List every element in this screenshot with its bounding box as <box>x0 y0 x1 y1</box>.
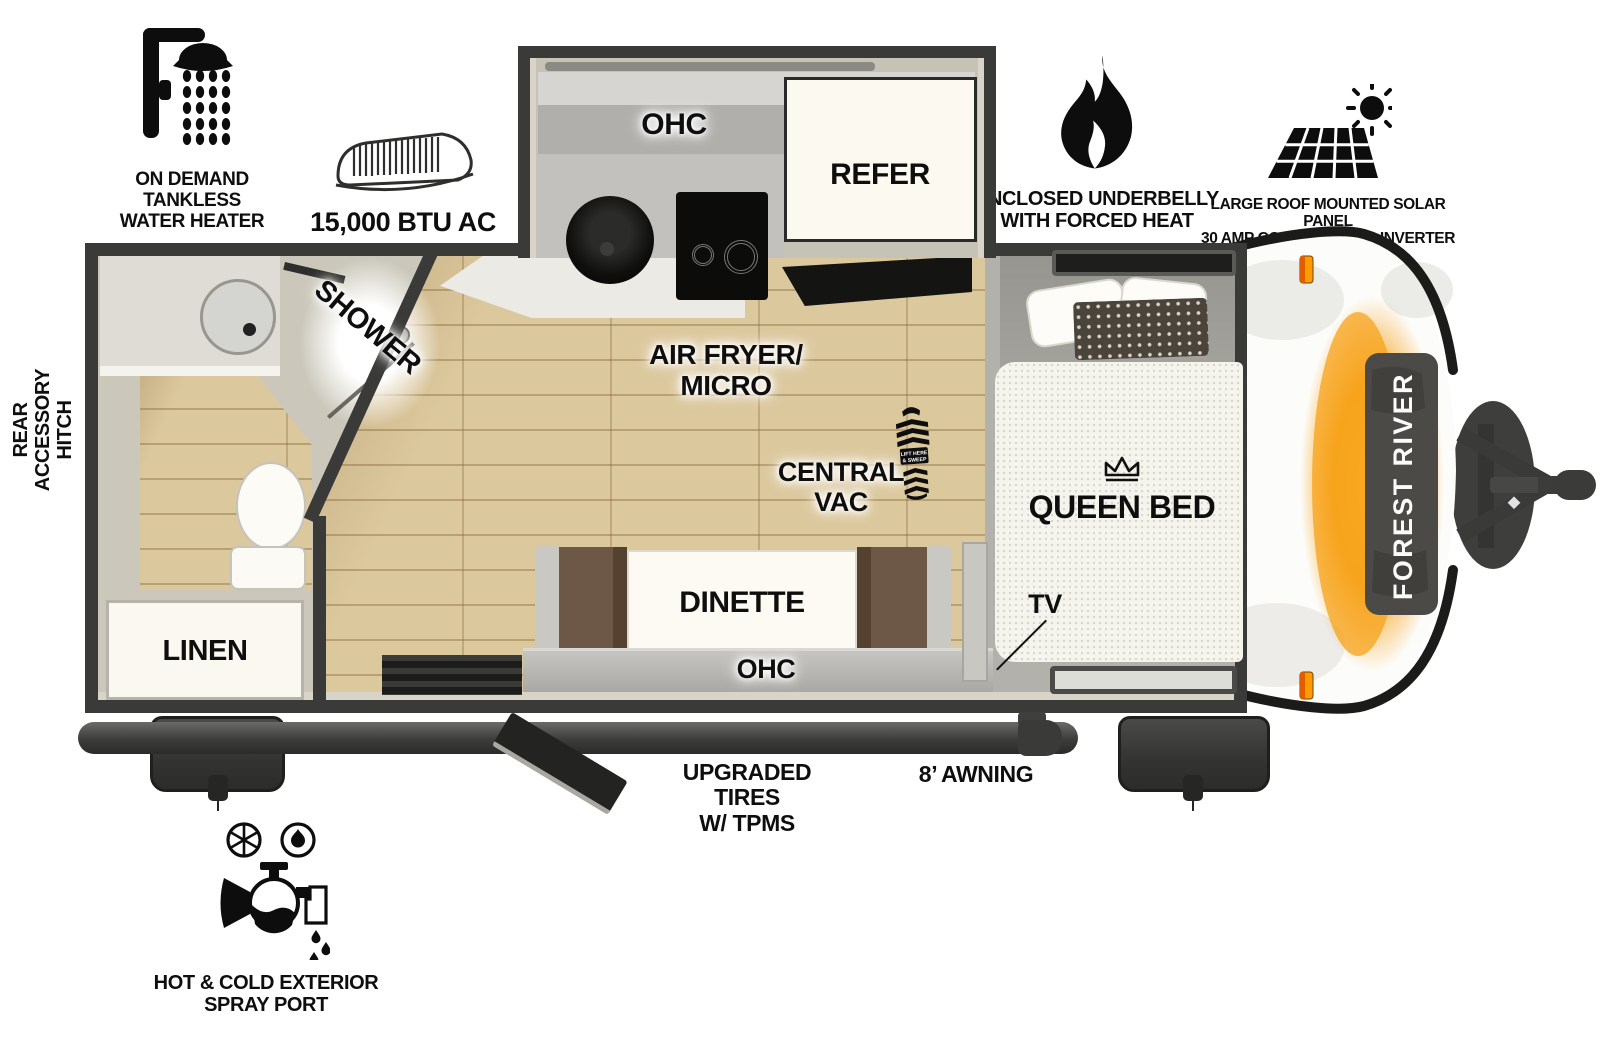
rear-hitch-label: REAR ACCESSORY HITCH <box>10 340 74 520</box>
dinette-label: DINETTE <box>642 586 842 619</box>
snowflake-icon <box>232 826 256 854</box>
boot-print-icon: LIFT HERE & SWEEP <box>888 402 941 505</box>
tpms-stem-right <box>1192 799 1194 811</box>
roof-vent-front <box>1052 250 1236 276</box>
dinette-ohc-label: OHC <box>666 655 866 685</box>
ac-unit-icon <box>330 128 482 198</box>
roof-vent-rear-bed <box>1050 666 1237 694</box>
spray-port-icon <box>210 818 330 960</box>
flame-small-icon <box>291 829 305 848</box>
kitchen-sink-drain <box>600 242 614 256</box>
ac-label: 15,000 BTU AC <box>298 208 508 238</box>
front-cap: FOREST RIVER <box>1222 220 1472 720</box>
tpms-sensor-right <box>1183 775 1203 801</box>
marker-light-bottom <box>1300 672 1313 699</box>
tires-label: UPGRADED TIRES W/ TPMS <box>647 760 847 836</box>
wheel-fender-right <box>1118 716 1270 792</box>
underbelly-label: ENCLOSED UNDERBELLY WITH FORCED HEAT <box>972 188 1222 232</box>
spray-port-label: HOT & COLD EXTERIOR SPRAY PORT <box>146 972 386 1016</box>
tpms-sensor-left <box>208 775 228 801</box>
kitchen-sink <box>566 196 654 284</box>
crown-icon <box>1102 454 1142 484</box>
marker-light-top <box>1300 256 1313 283</box>
bathroom-sink-drain <box>243 323 256 336</box>
bed-accent-pillow <box>1073 298 1209 361</box>
awning-end-collar <box>1018 720 1062 756</box>
slideout-window <box>545 62 875 71</box>
toilet-bowl <box>236 462 306 550</box>
tpms-stem-left <box>217 799 219 811</box>
forced-heat-flame-icon <box>1058 52 1135 172</box>
kitchen-ohc-label: OHC <box>574 108 774 141</box>
water-heater-label: ON DEMAND TANKLESS WATER HEATER <box>92 170 292 233</box>
tv-label: TV <box>1005 590 1085 620</box>
cooktop-burner-large <box>724 240 758 274</box>
awning-label: 8’ AWNING <box>876 762 1076 787</box>
linen-label: LINEN <box>105 636 305 668</box>
solar-panel-icon <box>1260 84 1392 184</box>
tankless-water-heater-icon <box>135 24 241 148</box>
entry-step <box>382 655 522 695</box>
toilet-tank <box>230 546 306 590</box>
rv-floorplan-diagram: ON DEMAND TANKLESS WATER HEATER 15,000 B… <box>0 0 1600 1040</box>
queen-bed-label: QUEEN BED <box>1002 490 1242 525</box>
awning-tube <box>78 722 1078 754</box>
refer-label: REFER <box>780 158 980 191</box>
cooktop-burner-small <box>692 244 714 266</box>
bathroom-vertical-wall <box>313 516 326 700</box>
bathroom-sink-bowl <box>200 279 276 355</box>
front-cap-brand-text: FOREST RIVER <box>1388 372 1418 600</box>
air-fryer-micro-label: AIR FRYER/ MICRO <box>626 340 826 402</box>
tv-cabinet <box>962 542 988 682</box>
